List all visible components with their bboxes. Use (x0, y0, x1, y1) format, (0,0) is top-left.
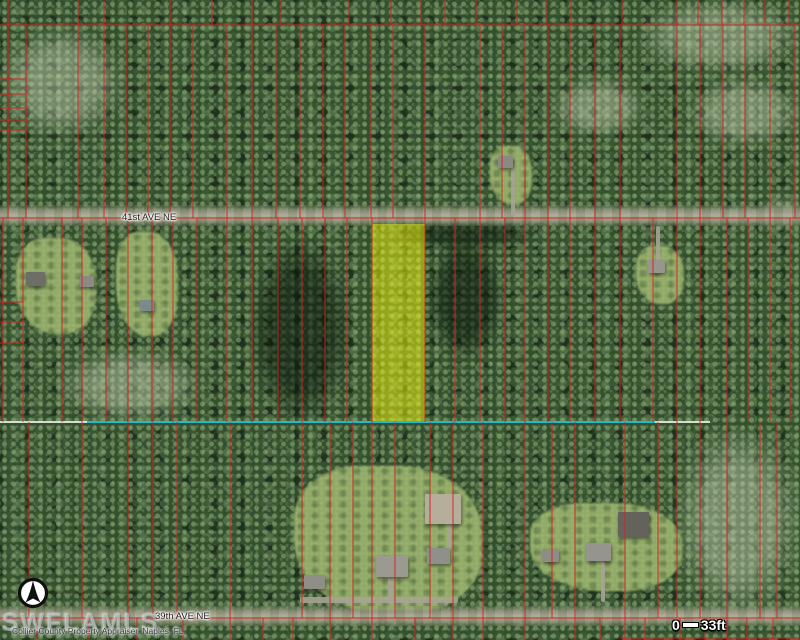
building-roof (80, 276, 94, 287)
building-roof (376, 556, 408, 577)
scale-end-label: 33ft (701, 617, 726, 633)
north-arrow-icon (17, 577, 49, 609)
building-roof (425, 494, 461, 524)
building-roof (427, 548, 450, 564)
building-roof (618, 512, 649, 537)
buildings-layer (0, 0, 800, 640)
map-canvas[interactable]: 41st AVE NE 39th AVE NE SWFLAMLS Collier… (0, 0, 800, 640)
road-label-41st-ave: 41st AVE NE (122, 212, 176, 223)
building-roof (140, 300, 154, 311)
building-roof (542, 549, 559, 562)
building-roof (26, 272, 45, 286)
building-roof (304, 575, 325, 589)
building-roof (648, 260, 665, 273)
scale-bar (683, 623, 698, 627)
attribution-text: Collier County Property Appraiser, Naple… (12, 626, 186, 636)
building-roof (498, 156, 513, 168)
road-label-39th-ave: 39th AVE NE (155, 611, 210, 622)
scale-start-label: 0 (672, 617, 680, 633)
building-roof (586, 543, 611, 561)
scale-indicator: 0 33ft (672, 617, 726, 633)
